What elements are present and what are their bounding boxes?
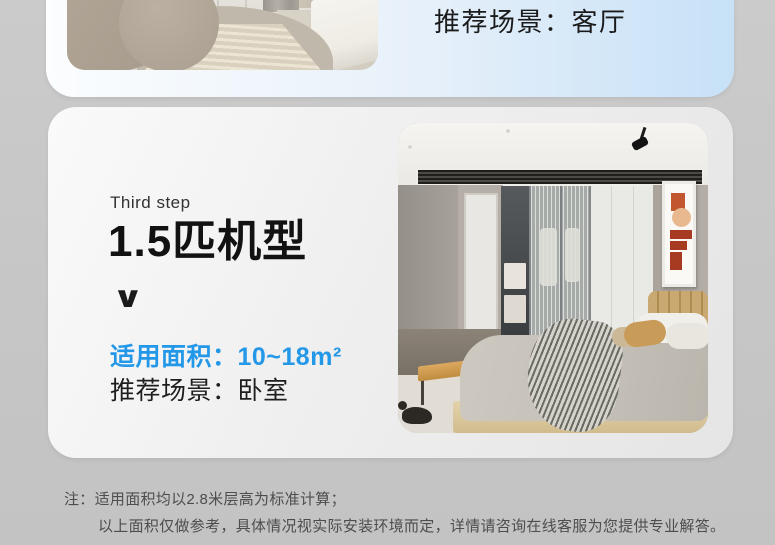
door: [464, 193, 498, 333]
white-pillow: [666, 323, 708, 349]
scene-label-bedroom: 推荐场景：卧室: [110, 371, 289, 407]
hanging-clothes: [565, 228, 580, 282]
step-label: Third step: [110, 193, 191, 213]
shelf-niche: [504, 263, 526, 289]
scene-card-living-room: 推荐场景：客厅: [46, 0, 734, 97]
footnote-prefix: 注：: [64, 491, 95, 508]
ceiling-light: [506, 129, 510, 133]
wall-art-frame: [662, 181, 696, 287]
art-shape-bar: [670, 230, 692, 239]
footnote-line-1: 注：适用面积均以2.8米层高为标准计算；: [64, 486, 744, 513]
wardrobe-white-panel: [591, 186, 653, 334]
ceiling-light: [408, 145, 412, 149]
scene-label-living-room: 推荐场景：客厅: [434, 2, 627, 39]
model-card-1-5hp: Third step 1.5匹机型 ∨ 适用面积：10~18m² 推荐场景：卧室: [48, 107, 733, 458]
panel-seam: [633, 186, 634, 334]
applicable-area-label: 适用面积：10~18m²: [110, 337, 342, 373]
art-shape-bar: [670, 241, 687, 250]
page: 推荐场景：客厅 Third step 1.5匹机型 ∨ 适用面积：10~18m²…: [0, 0, 775, 545]
footnote-text-1: 适用面积均以2.8米层高为标准计算；: [95, 491, 346, 508]
art-shape-circle: [672, 208, 691, 227]
model-title: 1.5匹机型: [108, 217, 307, 267]
ac-vent: [416, 168, 704, 186]
glass-door-divider: [560, 186, 562, 338]
art-shape-bar: [670, 252, 682, 270]
hanging-clothes: [540, 228, 557, 286]
bird-sculpture: [402, 407, 432, 424]
wardrobe-glass-doors: [529, 186, 591, 338]
panel-seam: [611, 186, 612, 334]
corridor-wall: [398, 185, 460, 335]
footnote-line-2: 以上面积仅做参考，具体情况视实际安装环境而定，详情请咨询在线客服为您提供专业解答…: [98, 513, 744, 540]
bedroom-photo: [398, 123, 708, 433]
shelf-niche: [504, 295, 526, 323]
footnote: 注：适用面积均以2.8米层高为标准计算； 以上面积仅做参考，具体情况视实际安装环…: [64, 486, 744, 540]
chevron-down-icon: ∨: [112, 283, 144, 313]
living-room-photo: [67, 0, 378, 70]
